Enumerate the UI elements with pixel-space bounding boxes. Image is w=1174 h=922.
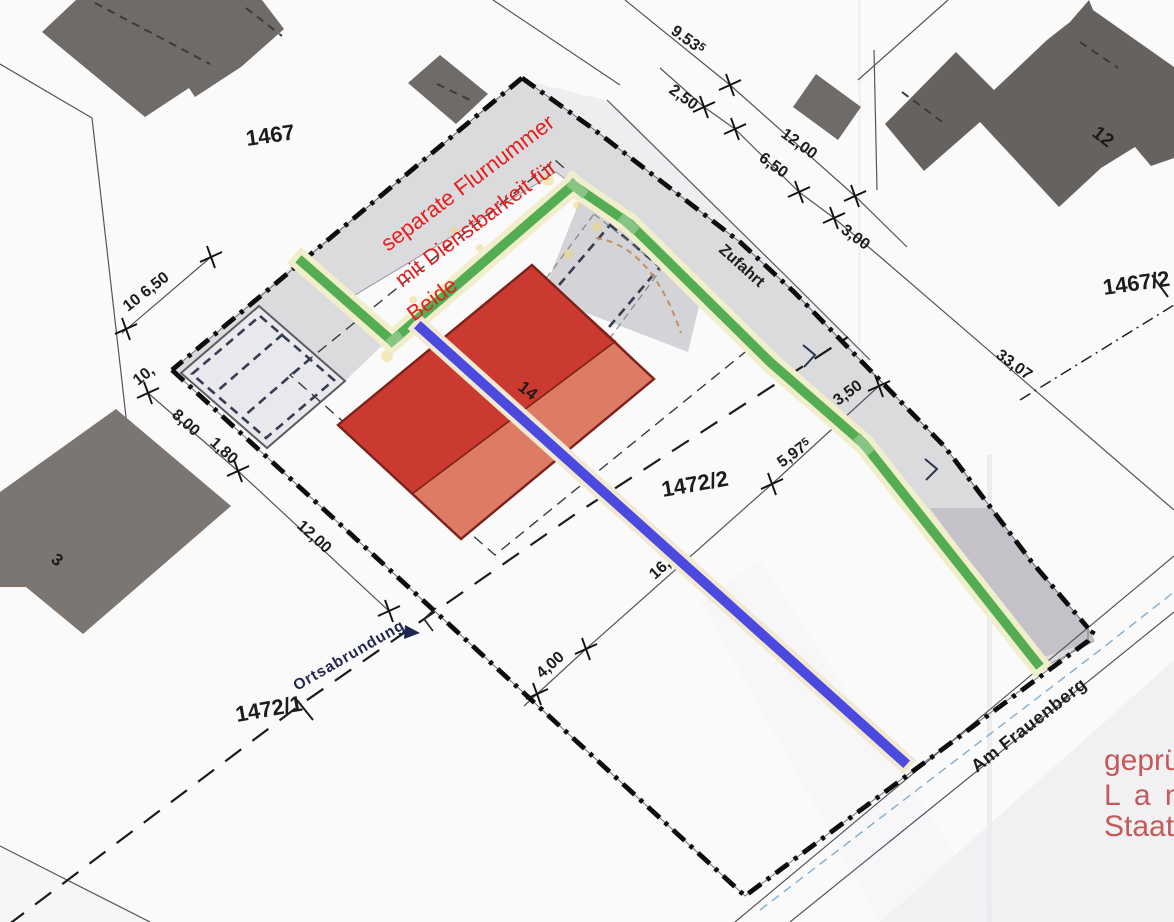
svg-text:geprü: geprü	[1104, 744, 1174, 777]
svg-text:L a n d: L a n d	[1104, 779, 1174, 812]
svg-text:Staatl: Staatl	[1104, 810, 1174, 843]
